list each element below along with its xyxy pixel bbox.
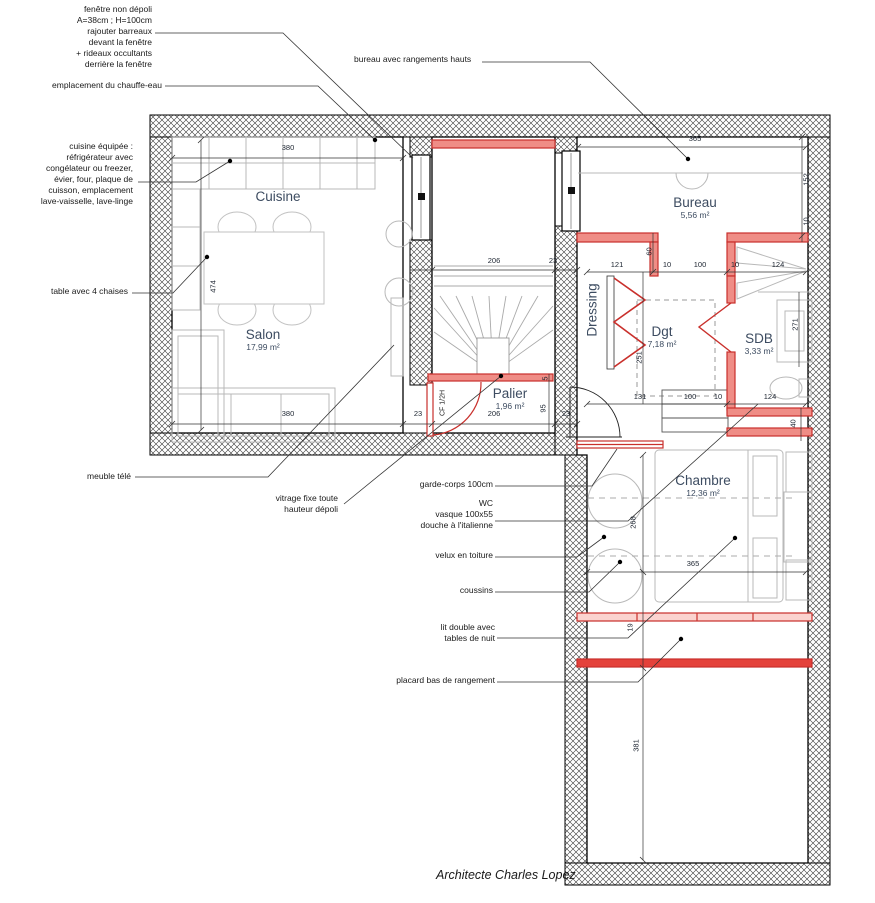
dimension-label: 206 — [477, 256, 511, 265]
dining-table — [204, 212, 324, 325]
room-label-dgt: Dgt 7,18 m² — [648, 324, 677, 349]
dimension-label: 5 — [541, 362, 550, 396]
dimension-label: 100 — [683, 260, 717, 269]
annotation-table-chairs: table avec 4 chaises — [51, 286, 128, 297]
dimension-label: 23 — [536, 256, 570, 265]
dimension-label: 271 — [791, 308, 800, 342]
annotation-roof-window: velux en toiture — [435, 550, 493, 561]
floor-plan-page: fenêtre non dépoli A=38cm ; H=100cm rajo… — [0, 0, 875, 903]
cf-door-label: CF 1/2H — [440, 390, 447, 416]
dimension-label: 365 — [678, 134, 712, 143]
dimension-label: 380 — [271, 143, 305, 152]
dimension-label: 124 — [761, 260, 795, 269]
dimension-label: 206 — [477, 409, 511, 418]
room-label-salon: Salon 17,99 m² — [246, 327, 281, 352]
water-heater-symbol — [386, 221, 412, 247]
annotation-guardrail: garde-corps 100cm — [420, 479, 493, 490]
dimension-label: 121 — [600, 260, 634, 269]
dimension-label: 23 — [549, 409, 583, 418]
sink-symbol — [385, 278, 413, 306]
dimension-label: 152 — [802, 163, 811, 197]
annotation-fixed-glazing: vitrage fixe toute hauteur dépoli — [276, 493, 338, 515]
dimension-label: 251 — [635, 341, 644, 375]
architect-credit: Architecte Charles Lopez — [436, 868, 576, 882]
dimension-label: 40 — [789, 407, 798, 441]
sdb-door — [699, 303, 731, 352]
dimension-label: 10 — [718, 260, 752, 269]
dimension-label: 365 — [676, 559, 710, 568]
annotation-low-storage: placard bas de rangement — [396, 675, 495, 686]
dimension-label: 10 — [650, 260, 684, 269]
storage-band — [577, 659, 812, 667]
dimension-label: 380 — [271, 409, 305, 418]
dimension-label: 10 — [701, 392, 735, 401]
dimension-label: 19 — [626, 611, 635, 645]
annotation-water-heater: emplacement du chauffe-eau — [52, 80, 162, 91]
desk — [578, 173, 803, 189]
room-label-bureau: Bureau 5,56 m² — [673, 195, 717, 220]
dimension-label: 474 — [209, 270, 218, 304]
annotation-cushions: coussins — [460, 585, 493, 596]
dimension-label: 60 — [645, 235, 654, 269]
bathroom-fixtures — [737, 247, 812, 399]
annotation-kitchen-equipment: cuisine équipée : réfrigérateur avec con… — [41, 141, 133, 207]
annotation-desk-storage: bureau avec rangements hauts — [354, 54, 471, 65]
annotation-bathroom-fittings: WC vasque 100x55 douche à l'italienne — [420, 498, 493, 531]
dimension-label: 124 — [753, 392, 787, 401]
room-label-dressing: Dressing — [585, 283, 600, 336]
room-label-palier: Palier 1,96 m² — [493, 386, 528, 411]
dimension-label: 10 — [802, 205, 811, 239]
dimension-label: 95 — [539, 392, 548, 426]
room-label-sdb: SDB 3,33 m² — [745, 331, 774, 356]
annotation-tv-cabinet: meuble télé — [87, 471, 131, 482]
dimension-label: 268 — [629, 506, 638, 540]
room-label-cuisine: Cuisine — [255, 189, 300, 204]
annotation-double-bed: lit double avec tables de nuit — [441, 622, 495, 644]
palier-glazing-band — [428, 374, 553, 381]
tv-cabinet-symbol — [391, 298, 403, 376]
low-cabinet-band — [577, 613, 812, 621]
dimension-label: 131 — [623, 392, 657, 401]
floor-plan-drawing — [0, 0, 875, 903]
entry-glazing-band — [432, 140, 555, 148]
annotation-window-note: fenêtre non dépoli A=38cm ; H=100cm rajo… — [76, 4, 152, 70]
cushion — [588, 549, 642, 603]
dimension-label: 381 — [632, 729, 641, 763]
room-label-chambre: Chambre 12,36 m² — [675, 473, 731, 498]
staircase — [434, 266, 553, 374]
dimension-label: 23 — [401, 409, 435, 418]
